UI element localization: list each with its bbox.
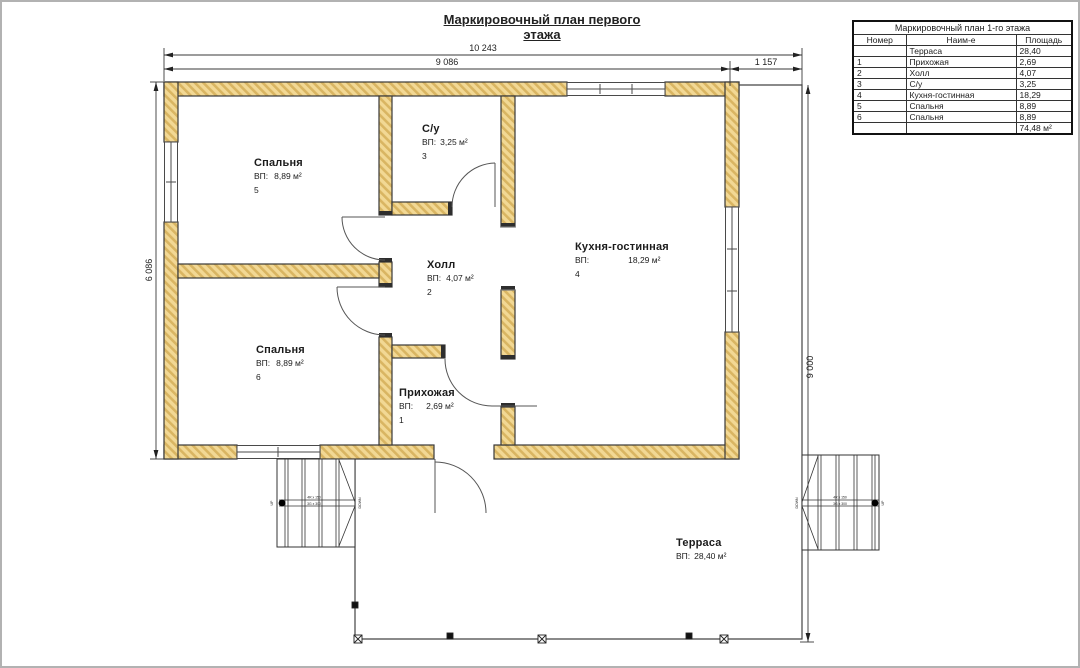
table-row: 6Спальня8,89	[853, 112, 1072, 123]
dim-top-total: 10 243	[469, 43, 497, 53]
cell-area: 8,89	[1016, 112, 1072, 123]
dim-top-main: 9 086	[436, 57, 459, 67]
table-row: Терраса28,40	[853, 46, 1072, 57]
stairs-down-label: DOWN	[795, 497, 799, 509]
cell-area: 18,29	[1016, 90, 1072, 101]
terrace-posts	[352, 602, 728, 643]
cell-num: 4	[853, 90, 906, 101]
table-row: 2Холл4,07	[853, 68, 1072, 79]
dim-left-height: 6 086	[144, 259, 154, 282]
cell-name: Холл	[906, 68, 1016, 79]
room-label-terrace: Терраса ВП:28,40 м²	[676, 537, 726, 564]
room-name: Терраса	[676, 537, 726, 550]
legend-table: Маркировочный план 1-го этажа Номер Наим…	[852, 20, 1073, 135]
room-name: С/у	[422, 123, 468, 136]
room-label-bedroom-5: Спальня ВП:8,89 м² 5	[254, 157, 303, 197]
room-area: 28,40 м²	[694, 551, 726, 561]
cell-name: С/у	[906, 79, 1016, 90]
table-row: 74,48 м²	[853, 123, 1072, 135]
stairs-spec: 4R x 150	[833, 496, 847, 500]
table-row: 4Кухня-гостинная18,29	[853, 90, 1072, 101]
stairs-left: UP DOWN 4R x 150 3G x 300	[270, 459, 362, 547]
cell-area: 3,25	[1016, 79, 1072, 90]
room-label-hallway: Прихожая ВП:2,69 м² 1	[399, 387, 455, 427]
vp-label: ВП:	[575, 255, 589, 265]
vp-label: ВП:	[254, 171, 268, 181]
stairs-up-label: UP	[270, 500, 274, 506]
legend-header-number: Номер	[853, 35, 906, 46]
cell-num: 3	[853, 79, 906, 90]
room-area: 2,69 м²	[426, 401, 454, 411]
room-number: 5	[254, 184, 303, 198]
room-name: Холл	[427, 259, 474, 272]
table-row: 5Спальня8,89	[853, 101, 1072, 112]
vp-label: ВП:	[422, 137, 436, 147]
room-area: 8,89 м²	[276, 358, 304, 368]
stairs-down-label: DOWN	[358, 497, 362, 509]
room-label-kitchen-living: Кухня-гостинная ВП:18,29 м² 4	[575, 241, 669, 281]
cell-name	[906, 123, 1016, 135]
room-label-bedroom-6: Спальня ВП:8,89 м² 6	[256, 344, 305, 384]
legend-table-title: Маркировочный план 1-го этажа	[853, 21, 1072, 35]
room-name: Спальня	[254, 157, 303, 170]
cell-num: 5	[853, 101, 906, 112]
room-area: 18,29 м²	[628, 255, 660, 265]
stairs-up-label: UP	[881, 500, 885, 506]
room-area: 3,25 м²	[440, 137, 468, 147]
room-number: 3	[422, 150, 468, 164]
page-title: Маркировочный план первого этажа	[392, 12, 692, 42]
cell-area: 4,07	[1016, 68, 1072, 79]
cell-name: Терраса	[906, 46, 1016, 57]
cell-name: Спальня	[906, 101, 1016, 112]
door-jambs	[379, 202, 515, 407]
legend-header-area: Площадь	[1016, 35, 1072, 46]
room-number: 2	[427, 286, 474, 300]
room-number: 1	[399, 414, 455, 428]
cell-area: 8,89	[1016, 101, 1072, 112]
cell-num	[853, 123, 906, 135]
cell-name: Кухня-гостинная	[906, 90, 1016, 101]
page-title-line2: этажа	[392, 27, 692, 42]
page-title-line1: Маркировочный план первого	[392, 12, 692, 27]
dim-top-right: 1 157	[755, 57, 778, 67]
vp-label: ВП:	[427, 273, 441, 283]
legend-header-name: Наим-е	[906, 35, 1016, 46]
room-number: 4	[575, 268, 669, 282]
table-row: 3С/у3,25	[853, 79, 1072, 90]
room-name: Кухня-гостинная	[575, 241, 669, 254]
room-number: 6	[256, 371, 305, 385]
stairs-spec: 3G x 300	[307, 502, 321, 506]
stairs-spec: 4R x 150	[307, 496, 321, 500]
cell-area: 28,40	[1016, 46, 1072, 57]
room-label-hall: Холл ВП:4,07 м² 2	[427, 259, 474, 299]
cell-name: Прихожая	[906, 57, 1016, 68]
room-name: Прихожая	[399, 387, 455, 400]
table-row: 1Прихожая2,69	[853, 57, 1072, 68]
dim-right-height: 9 000	[805, 356, 815, 379]
cell-num: 2	[853, 68, 906, 79]
cell-num: 1	[853, 57, 906, 68]
vp-label: ВП:	[256, 358, 270, 368]
room-name: Спальня	[256, 344, 305, 357]
cell-area: 2,69	[1016, 57, 1072, 68]
room-label-bathroom: С/у ВП:3,25 м² 3	[422, 123, 468, 163]
cell-name: Спальня	[906, 112, 1016, 123]
stairs-right: UP DOWN 4R x 150 3G x 300	[795, 455, 885, 550]
room-area: 8,89 м²	[274, 171, 302, 181]
floor-plan-page: UP DOWN 4R x 150 3G x 300 UP DOWN 4R x 1…	[0, 0, 1080, 668]
cell-area: 74,48 м²	[1016, 123, 1072, 135]
cell-num	[853, 46, 906, 57]
stairs-spec: 3G x 300	[833, 502, 847, 506]
cell-num: 6	[853, 112, 906, 123]
vp-label: ВП:	[399, 401, 413, 411]
vp-label: ВП:	[676, 551, 690, 561]
room-area: 4,07 м²	[446, 273, 474, 283]
